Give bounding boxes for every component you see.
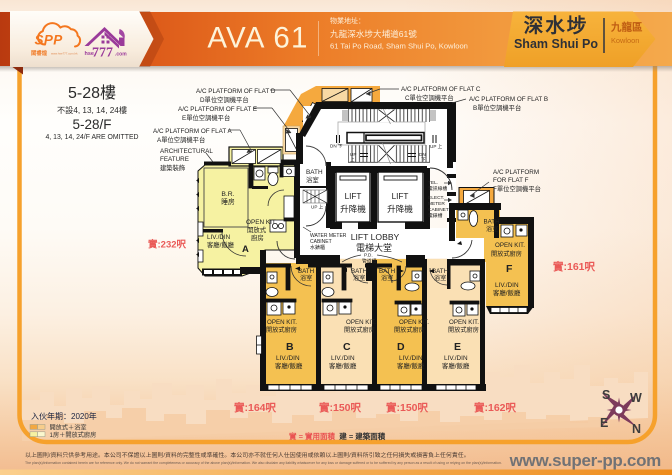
svg-text:開放式＋浴室: 開放式＋浴室	[50, 424, 87, 432]
svg-text:1房＋開放式廚房: 1房＋開放式廚房	[50, 431, 97, 439]
